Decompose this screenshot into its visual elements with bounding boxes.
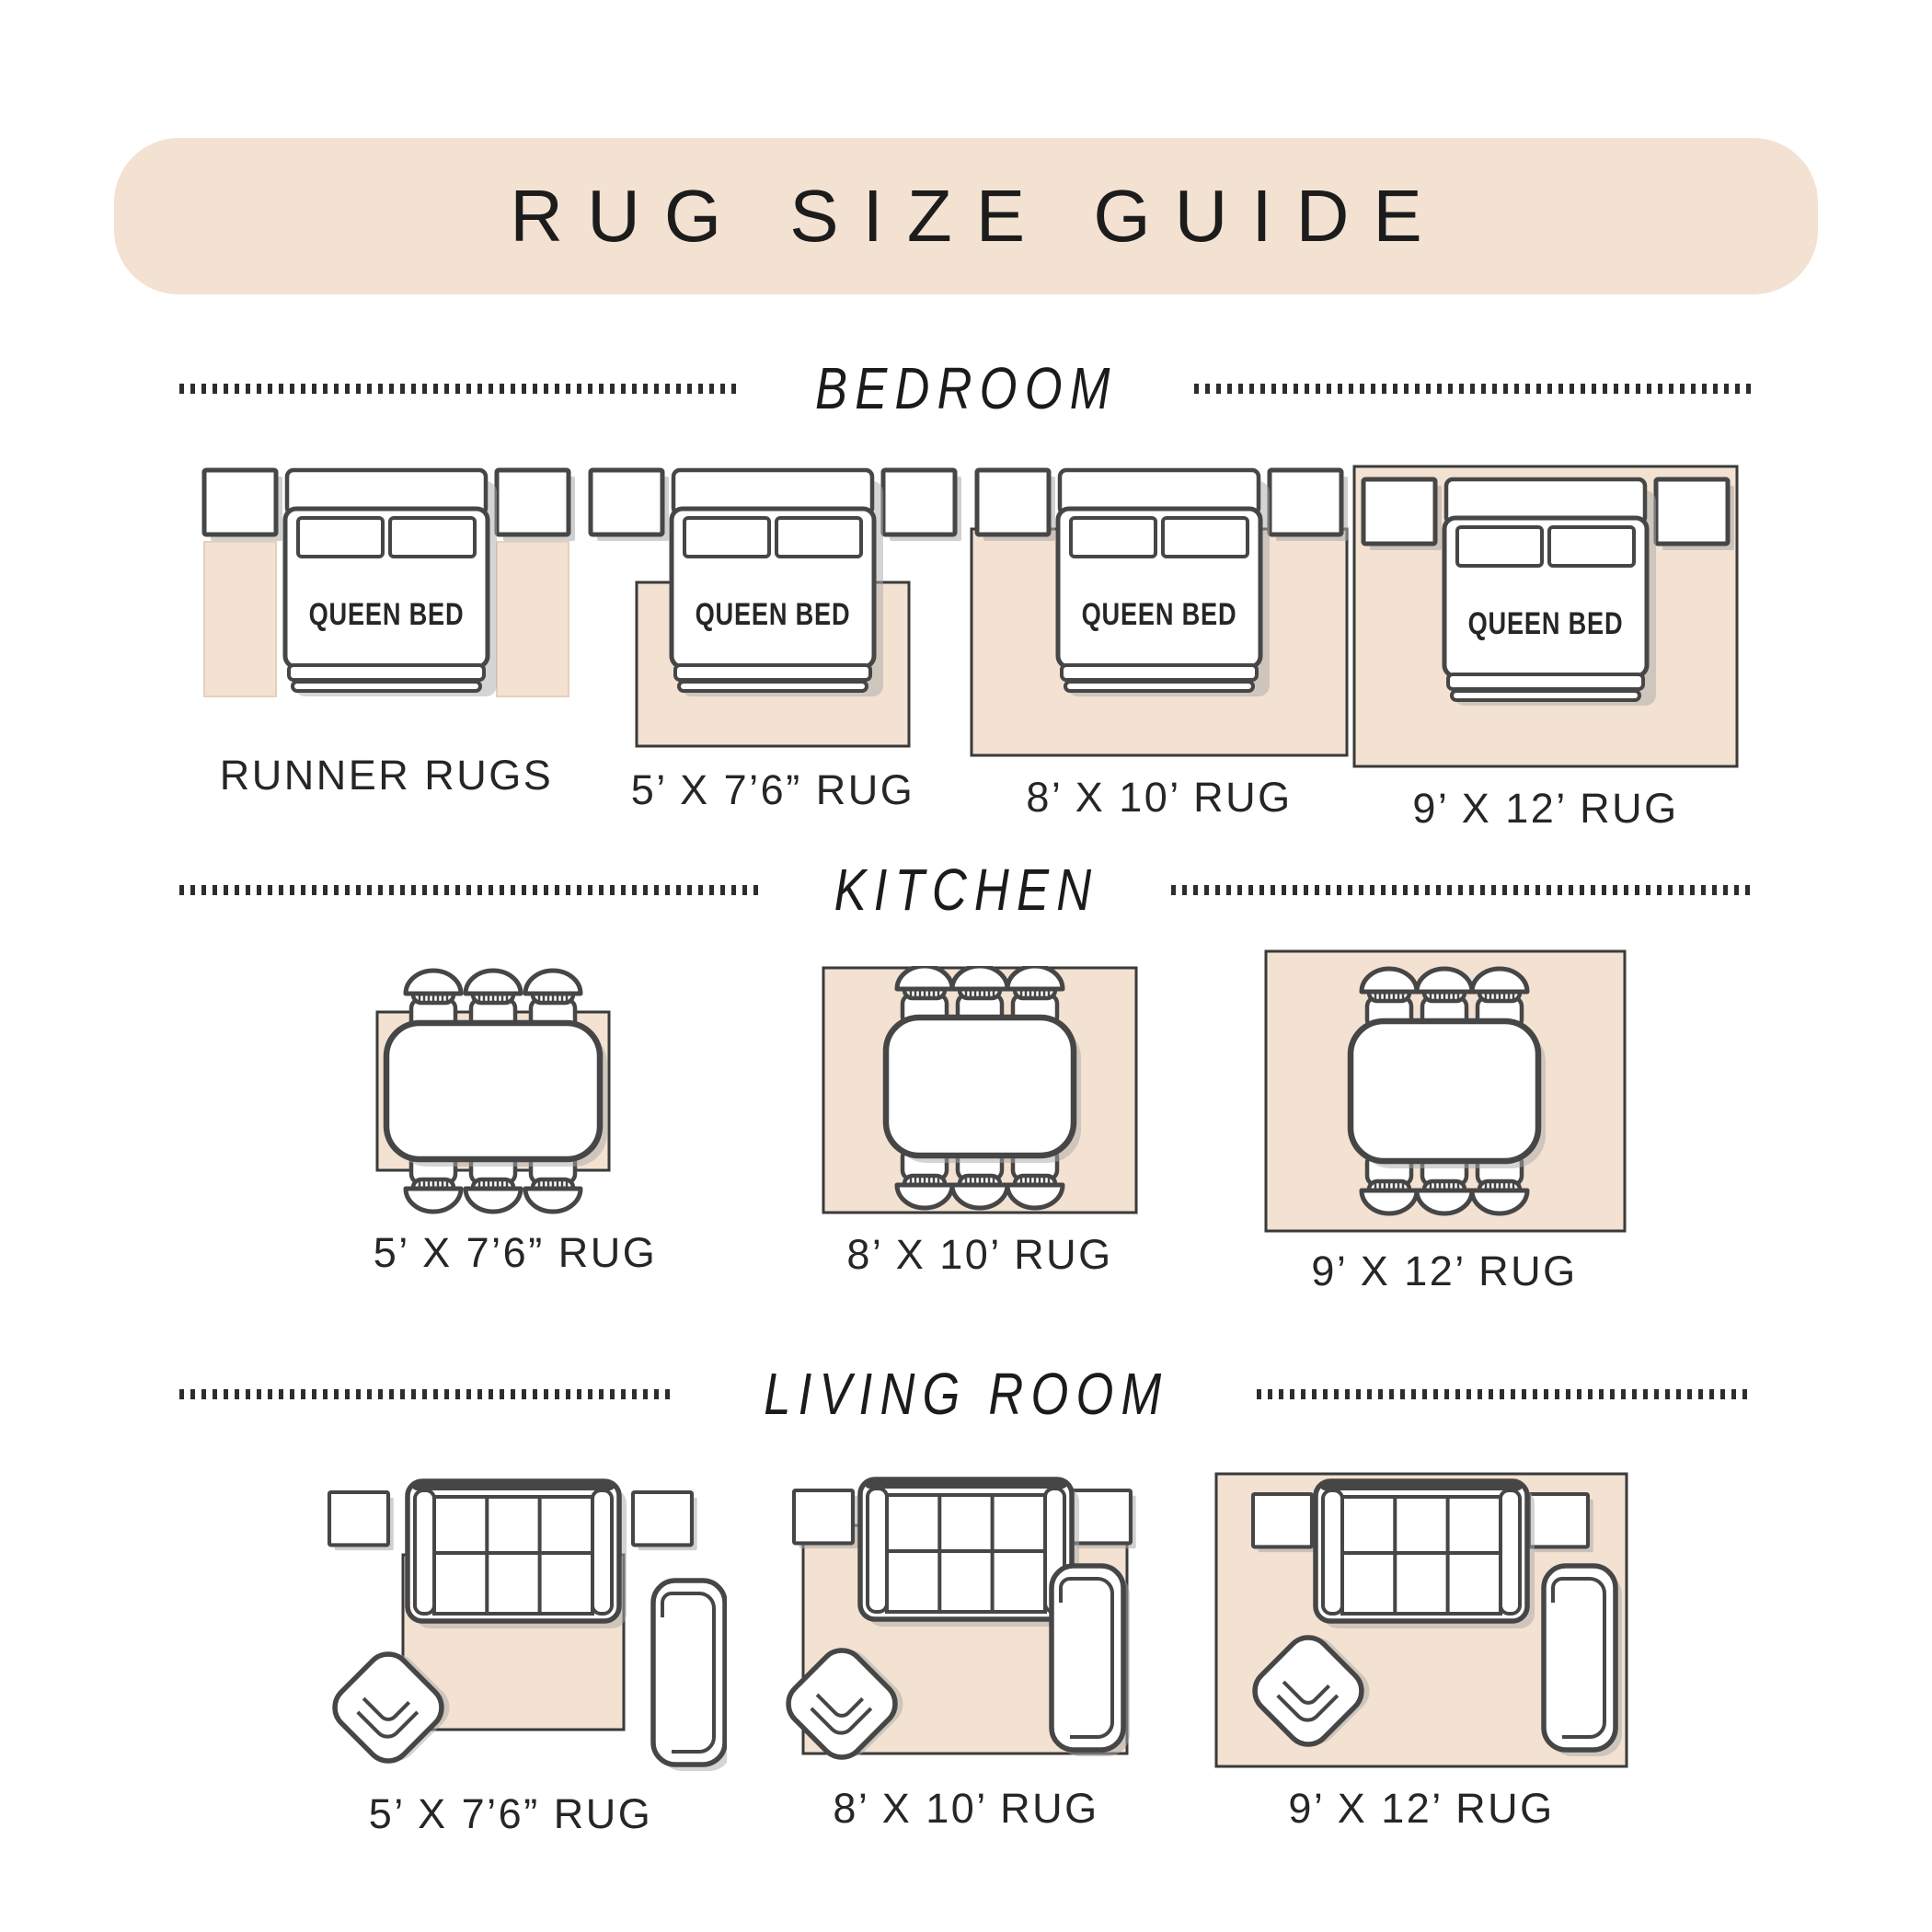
- runner-rug-left: [204, 542, 276, 696]
- queen-bed: [285, 470, 497, 696]
- kitchen-8x10-illustration: [787, 966, 1173, 1220]
- diagram-bedroom-5x76-rug: QUEEN BED 5’ X 7’6” RUG: [580, 465, 966, 814]
- diagram-bedroom-8x10-rug: QUEEN BED 8’ X 10’ RUG: [966, 465, 1352, 822]
- diagram-kitchen-9x12-rug: 9’ X 12’ RUG: [1251, 949, 1638, 1295]
- chaise-chair: [1052, 1566, 1130, 1756]
- section-title-bedroom: BEDROOM: [815, 354, 1118, 422]
- nightstand-left: [591, 470, 669, 541]
- bedroom-5x76-illustration: QUEEN BED: [580, 465, 966, 755]
- diagram-kitchen-5x76-rug: 5’ X 7’6” RUG: [322, 968, 708, 1277]
- rug-size-label: 8’ X 10’ RUG: [1026, 774, 1292, 822]
- nightstand-left: [977, 470, 1055, 541]
- nightstand-right: [497, 470, 575, 541]
- kitchen-diagrams-row: 5’ X 7’6” RUG 8’ X 10’ RUG: [322, 948, 1638, 1297]
- bedroom-runner-illustration: QUEEN BED: [193, 465, 580, 741]
- kitchen-5x76-illustration: [322, 968, 708, 1218]
- kitchen-9x12-illustration: [1251, 949, 1638, 1236]
- chaise-chair: [653, 1581, 727, 1771]
- bedroom-8x10-illustration: QUEEN BED: [966, 465, 1352, 763]
- rug-size-label: 5’ X 7’6” RUG: [374, 1229, 657, 1277]
- living-room-diagrams-row: 5’ X 7’6” RUG 8’ X 10’ RUG 9’: [294, 1470, 1638, 1838]
- nightstand-right: [1656, 479, 1734, 550]
- sofa: [860, 1479, 1079, 1627]
- divider-dotted-right: [1194, 384, 1753, 394]
- section-header-kitchen: KITCHEN: [179, 856, 1753, 924]
- sofa: [408, 1481, 627, 1628]
- living-5x76-illustration: [294, 1470, 727, 1779]
- divider-dotted-left: [179, 384, 738, 394]
- queen-bed-label: QUEEN BED: [1468, 605, 1624, 641]
- bedroom-diagrams-row: QUEEN BED RUNNER RUGS QUEEN BED 5’ X 7’6…: [193, 465, 1739, 833]
- rug-size-guide-infographic: RUG SIZE GUIDE BEDROOM KITCHEN LIVING RO…: [0, 0, 1932, 1932]
- runner-rug-right: [497, 542, 569, 696]
- queen-bed-label: QUEEN BED: [309, 596, 465, 632]
- chaise-chair: [1544, 1566, 1622, 1756]
- queen-bed-label: QUEEN BED: [696, 596, 851, 632]
- sofa: [1316, 1481, 1535, 1628]
- rug-size-label: 8’ X 10’ RUG: [833, 1785, 1098, 1833]
- nightstand-left: [1363, 479, 1442, 550]
- diagram-living-8x10-rug: 8’ X 10’ RUG: [750, 1470, 1182, 1833]
- side-table-left: [329, 1492, 394, 1550]
- dining-table: [386, 1023, 600, 1159]
- rug-size-label: 9’ X 12’ RUG: [1311, 1248, 1577, 1295]
- queen-bed: [1444, 479, 1656, 706]
- living-8x10-illustration: [750, 1470, 1182, 1774]
- rug-size-label: 8’ X 10’ RUG: [846, 1231, 1112, 1279]
- section-header-bedroom: BEDROOM: [179, 354, 1753, 422]
- rug-size-label: 5’ X 7’6” RUG: [631, 766, 914, 814]
- side-table-left: [794, 1490, 858, 1548]
- side-table-right: [1072, 1490, 1136, 1548]
- divider-dotted-left: [179, 1389, 675, 1399]
- living-9x12-illustration: [1205, 1470, 1638, 1774]
- queen-bed-label: QUEEN BED: [1082, 596, 1237, 632]
- section-header-living-room: LIVING ROOM: [179, 1360, 1753, 1428]
- nightstand-left: [204, 470, 282, 541]
- divider-dotted-right: [1257, 1389, 1753, 1399]
- diagram-bedroom-9x12-rug: QUEEN BED 9’ X 12’ RUG: [1352, 465, 1739, 833]
- rug-size-label: RUNNER RUGS: [220, 752, 554, 799]
- section-title-kitchen: KITCHEN: [834, 856, 1098, 924]
- side-table-right: [1529, 1494, 1593, 1552]
- diagram-living-9x12-rug: 9’ X 12’ RUG: [1205, 1470, 1638, 1833]
- header-banner: RUG SIZE GUIDE: [114, 138, 1818, 294]
- page-title: RUG SIZE GUIDE: [486, 174, 1445, 259]
- diagram-bedroom-runner-rugs: QUEEN BED RUNNER RUGS: [193, 465, 580, 799]
- rug-size-label: 9’ X 12’ RUG: [1412, 785, 1678, 833]
- queen-bed: [1058, 470, 1270, 696]
- diagram-living-5x76-rug: 5’ X 7’6” RUG: [294, 1470, 727, 1838]
- diagram-kitchen-8x10-rug: 8’ X 10’ RUG: [787, 966, 1173, 1279]
- dining-table: [1351, 1021, 1538, 1161]
- side-table-right: [633, 1492, 697, 1550]
- divider-dotted-right: [1171, 885, 1753, 895]
- dining-table: [886, 1018, 1074, 1156]
- bedroom-9x12-illustration: QUEEN BED: [1352, 465, 1739, 774]
- rug-size-label: 5’ X 7’6” RUG: [369, 1790, 652, 1838]
- divider-dotted-left: [179, 885, 761, 895]
- section-title-living-room: LIVING ROOM: [764, 1360, 1168, 1428]
- side-table-left: [1253, 1494, 1317, 1552]
- queen-bed: [672, 470, 883, 696]
- nightstand-right: [883, 470, 961, 541]
- rug-size-label: 9’ X 12’ RUG: [1288, 1785, 1554, 1833]
- nightstand-right: [1270, 470, 1348, 541]
